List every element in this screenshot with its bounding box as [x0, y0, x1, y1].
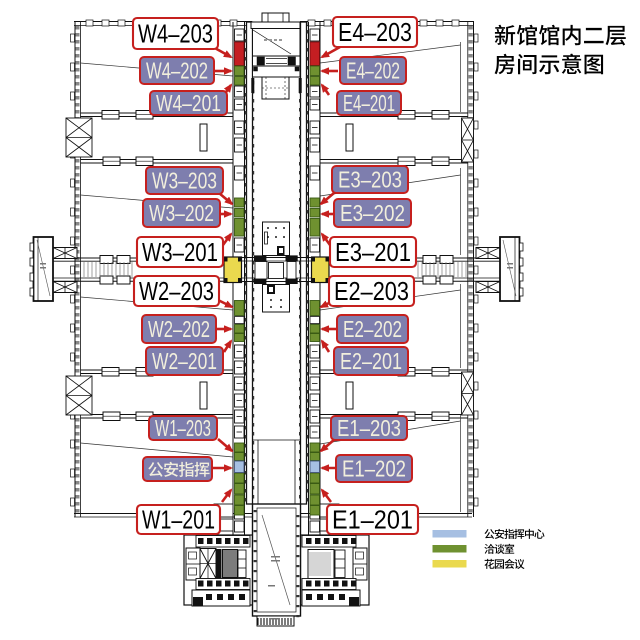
- svg-text:E4–203: E4–203: [338, 17, 412, 47]
- svg-text:W4–203: W4–203: [138, 19, 213, 49]
- svg-text:W3–202: W3–202: [149, 200, 214, 226]
- svg-text:E4–201: E4–201: [343, 90, 395, 116]
- svg-text:E4–202: E4–202: [346, 58, 400, 84]
- svg-text:W3–201: W3–201: [142, 237, 218, 267]
- svg-text:W3–203: W3–203: [152, 168, 217, 194]
- svg-text:W2–201: W2–201: [152, 348, 217, 374]
- svg-text:W1–203: W1–203: [155, 415, 211, 441]
- svg-text:W4–201: W4–201: [156, 90, 221, 116]
- svg-text:W2–203: W2–203: [139, 276, 214, 306]
- svg-text:E2–201: E2–201: [340, 348, 402, 374]
- svg-text:E3–201: E3–201: [335, 237, 411, 267]
- svg-text:E3–203: E3–203: [338, 167, 402, 193]
- svg-text:W2–202: W2–202: [148, 316, 210, 342]
- svg-text:E2–203: E2–203: [334, 276, 409, 306]
- svg-text:E3–202: E3–202: [340, 200, 405, 226]
- svg-text:E2–202: E2–202: [343, 316, 402, 342]
- svg-text:E1–201: E1–201: [332, 505, 413, 535]
- svg-text:W4–202: W4–202: [146, 58, 208, 84]
- svg-text:E1–203: E1–203: [337, 415, 401, 441]
- svg-text:E1–202: E1–202: [342, 456, 406, 482]
- svg-text:W1–201: W1–201: [142, 505, 215, 535]
